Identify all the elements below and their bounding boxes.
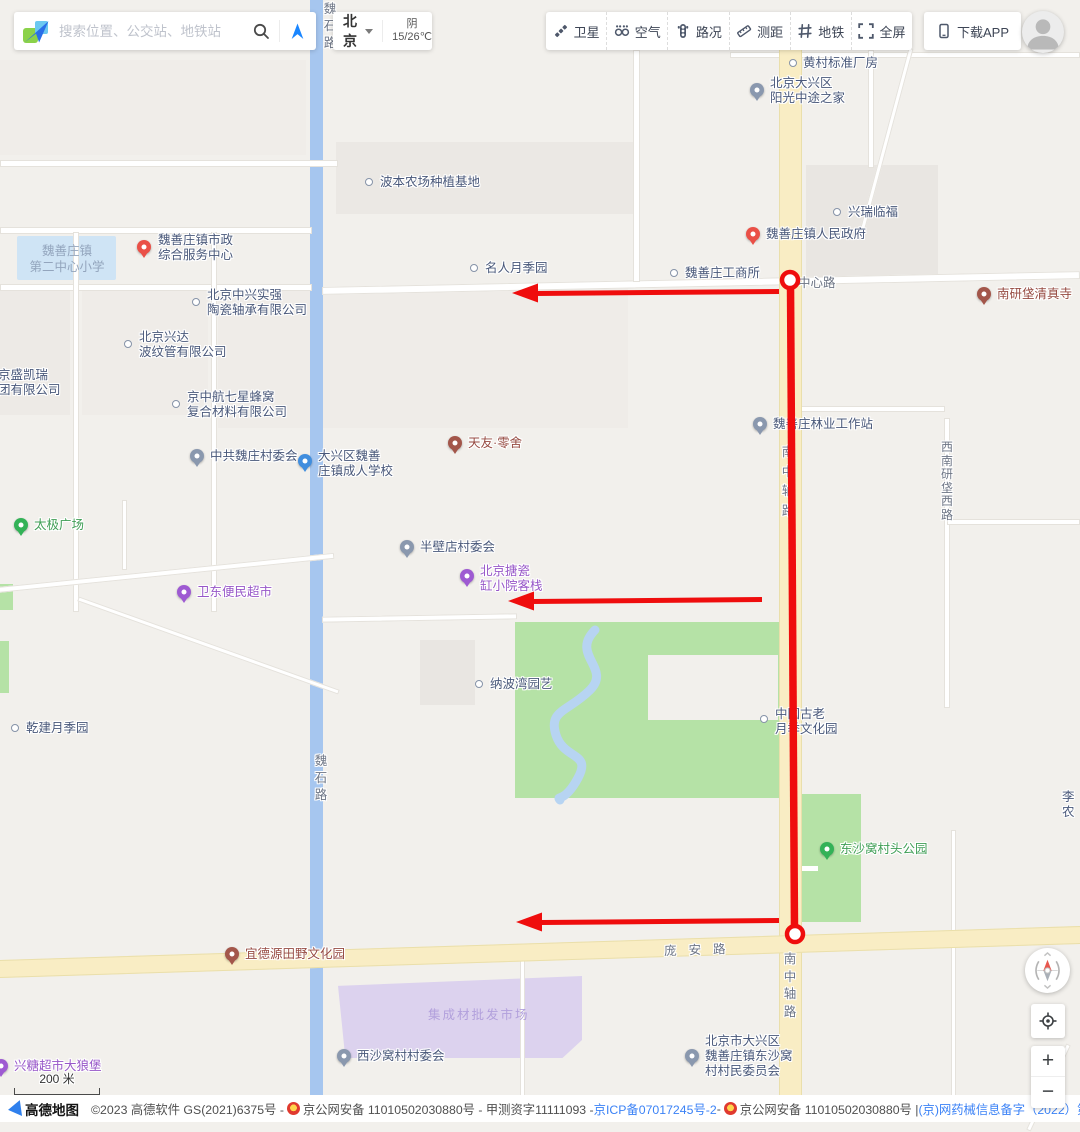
poi-label: 天友·零舍 — [468, 436, 522, 451]
scale-line — [14, 1088, 100, 1095]
poi-label: 乾建月季园 — [26, 721, 89, 736]
toolbar-label: 测距 — [757, 22, 783, 41]
toolbar-label: 路况 — [696, 22, 722, 41]
scale-label: 200 米 — [14, 1070, 100, 1087]
zoom-out-button[interactable]: − — [1031, 1076, 1065, 1107]
chevron-down-icon — [365, 29, 373, 38]
poi-pin-marker — [400, 540, 414, 554]
poi-pin-marker — [0, 1059, 8, 1073]
zoom-control: + − — [1031, 1046, 1065, 1108]
compass-control[interactable] — [1025, 948, 1070, 993]
poi-label: 卫东便民超市 — [197, 585, 272, 600]
poi-label: 北京搪瓷缸小院客栈 — [480, 564, 543, 594]
city-weather-card: 北京 阴 15/26℃ — [333, 12, 432, 50]
poi-dot-marker — [365, 178, 373, 186]
poi-dot-marker — [192, 298, 200, 306]
poi-label: 太极广场 — [34, 518, 84, 533]
toolbar-measure-button[interactable]: 测距 — [729, 12, 790, 50]
city-selector[interactable]: 北京 — [343, 11, 361, 51]
satellite-icon — [553, 23, 569, 39]
map-canvas[interactable]: 魏善庄镇第二中心小学集成材批发市场 中心路庞安路南中轴路南中轴路西南研垡西路魏石… — [0, 0, 1080, 1122]
poi-label: 北京兴达波纹管有限公司 — [139, 330, 227, 360]
poi-label: 北京中兴实强陶瓷轴承有限公司 — [207, 288, 307, 318]
traffic-icon — [675, 23, 691, 39]
toolbar-label: 地铁 — [818, 22, 844, 41]
poi-dot-marker — [124, 340, 132, 348]
poi-label: 李农 — [1062, 790, 1075, 820]
police-badge-icon — [724, 1102, 737, 1115]
map-toolbar: 卫星空气路况测距地铁全屏 — [546, 12, 912, 50]
poi-pin-marker — [177, 585, 191, 599]
poi-label: 东沙窝村头公园 — [840, 842, 928, 857]
poi-pin-marker — [753, 417, 767, 431]
poi-dot-marker — [470, 264, 478, 272]
poi-pin-marker — [298, 454, 312, 468]
poi-label: 中共魏庄村委会 — [210, 449, 298, 464]
poi-label: 北京大兴区阳光中途之家 — [770, 76, 845, 106]
fullscreen-icon — [858, 23, 874, 39]
poi-pin-marker — [750, 83, 764, 97]
poi-layer: 黄村标准厂房北京大兴区阳光中途之家波本农场种植基地兴瑞临福魏善庄镇人民政府名人月… — [0, 0, 1080, 1122]
poi-dot-marker — [11, 724, 19, 732]
poi-pin-marker — [190, 449, 204, 463]
poi-label: 中国古老月季文化园 — [775, 707, 838, 737]
poi-pin-marker — [225, 947, 239, 961]
poi-label: 大兴区魏善庄镇成人学校 — [318, 449, 393, 479]
weather-temperature: 15/26℃ — [392, 31, 432, 44]
search-icon[interactable] — [252, 22, 270, 40]
weather-info: 阴 15/26℃ — [392, 18, 432, 44]
copyright-text: ©2023 高德软件 GS(2021)6375号 - 京公网安备 1101050… — [91, 1100, 1080, 1118]
measure-icon — [736, 23, 752, 39]
search-input[interactable] — [57, 23, 252, 40]
avatar[interactable] — [1022, 11, 1064, 53]
footer-text: 京公网安备 11010502030880号 - 甲测资字11111093 - — [303, 1100, 594, 1118]
footer-text: 京公网安备 11010502030880号 | — [740, 1100, 919, 1118]
download-app-button[interactable]: 下载APP — [924, 12, 1021, 50]
toolbar-metro-button[interactable]: 地铁 — [790, 12, 851, 50]
toolbar-traffic-button[interactable]: 路况 — [667, 12, 728, 50]
footer-link[interactable]: 京ICP备07017245号-2 — [594, 1100, 717, 1118]
locate-me-button[interactable] — [1031, 1004, 1065, 1038]
poi-dot-marker — [760, 715, 768, 723]
metro-icon — [797, 23, 813, 39]
poi-pin-marker — [746, 227, 760, 241]
poi-label: 北京市大兴区魏善庄镇东沙窝村村民委员会 — [705, 1034, 793, 1079]
zoom-in-button[interactable]: + — [1031, 1046, 1065, 1076]
poi-label: 京中航七星蜂窝复合材料有限公司 — [187, 390, 287, 420]
scale-bar: 200 米 — [14, 1070, 100, 1095]
amap-footer-logo-text: 高德地图 — [25, 1099, 79, 1119]
poi-dot-marker — [475, 680, 483, 688]
poi-label: 魏善庄镇市政综合服务中心 — [158, 233, 233, 263]
poi-dot-marker — [670, 269, 678, 277]
amap-arrow-icon — [7, 1100, 22, 1118]
amap-footer-logo: 高德地图 — [8, 1099, 79, 1119]
footer-bar: 高德地图 ©2023 高德软件 GS(2021)6375号 - 京公网安备 11… — [0, 1095, 1080, 1122]
toolbar-label: 全屏 — [879, 22, 905, 41]
poi-label: 京盛凯瑞团有限公司 — [0, 368, 61, 398]
poi-pin-marker — [337, 1049, 351, 1063]
poi-label: 宜德源田野文化园 — [245, 947, 345, 962]
poi-pin-marker — [448, 436, 462, 450]
poi-label: 兴瑞临福 — [848, 205, 898, 220]
poi-label: 西沙窝村村委会 — [357, 1049, 445, 1064]
poi-pin-marker — [460, 569, 474, 583]
poi-label: 南研垡清真寺 — [997, 287, 1072, 302]
poi-label: 黄村标准厂房 — [803, 56, 878, 71]
poi-dot-marker — [833, 208, 841, 216]
poi-pin-marker — [820, 842, 834, 856]
toolbar-satellite-button[interactable]: 卫星 — [546, 12, 606, 50]
download-app-label: 下载APP — [957, 22, 1009, 41]
police-badge-icon — [287, 1102, 300, 1115]
poi-label: 魏善庄镇人民政府 — [766, 227, 866, 242]
directions-icon[interactable] — [289, 23, 306, 40]
toolbar-air-button[interactable]: 空气 — [606, 12, 667, 50]
footer-text: - — [717, 1102, 721, 1116]
divider — [382, 20, 383, 42]
poi-pin-marker — [137, 240, 151, 254]
poi-label: 波本农场种植基地 — [380, 175, 480, 190]
poi-pin-marker — [977, 287, 991, 301]
poi-label: 名人月季园 — [485, 261, 548, 276]
weather-condition: 阴 — [392, 18, 432, 31]
footer-text: ©2023 高德软件 GS(2021)6375号 - — [91, 1100, 284, 1118]
toolbar-label: 空气 — [635, 22, 661, 41]
poi-pin-marker — [685, 1049, 699, 1063]
poi-label: 魏善庄林业工作站 — [773, 417, 873, 432]
poi-dot-marker — [789, 59, 797, 67]
poi-label: 魏善庄工商所 — [685, 266, 760, 281]
divider — [279, 20, 280, 42]
phone-icon — [936, 23, 952, 39]
poi-label: 半壁店村委会 — [420, 540, 495, 555]
poi-dot-marker — [172, 400, 180, 408]
air-icon — [614, 23, 630, 39]
poi-pin-marker — [14, 518, 28, 532]
toolbar-label: 卫星 — [574, 22, 600, 41]
toolbar-fullscreen-button[interactable]: 全屏 — [851, 12, 912, 50]
amap-logo-icon — [23, 18, 49, 44]
poi-label: 纳波湾园艺 — [490, 677, 553, 692]
search-bar — [14, 12, 316, 50]
